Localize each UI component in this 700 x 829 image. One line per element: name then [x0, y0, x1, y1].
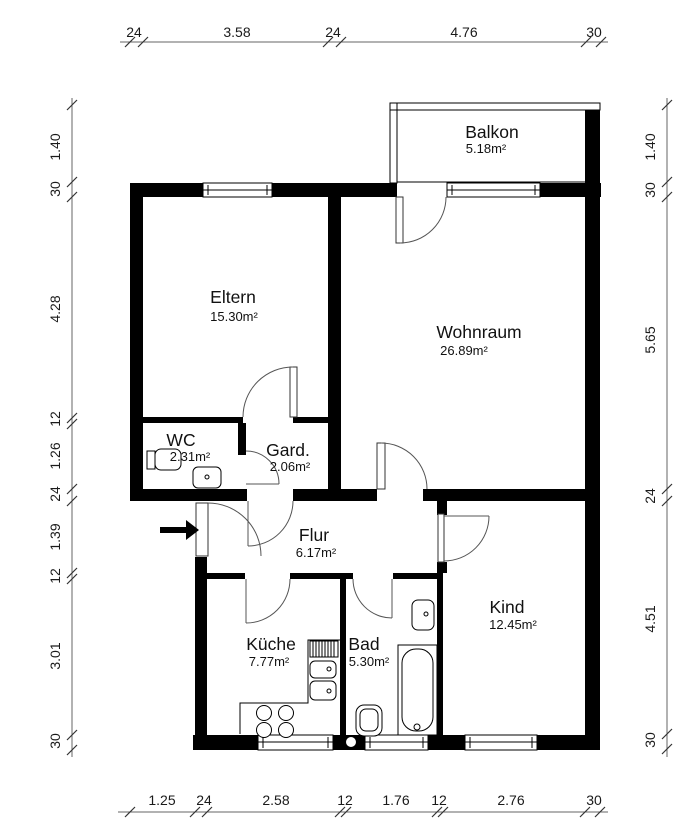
dimension-top: 24 3.58 24 4.76 30: [120, 24, 608, 47]
eltern-window: [203, 183, 272, 197]
wall-eltern-wohnraum: [328, 183, 341, 489]
dim-bottom-7: 30: [586, 792, 602, 808]
dimension-left: 1.40 30 4.28 12 1.26 24 1.39 12 3.01 30: [47, 98, 77, 757]
wall-flur-bottom-b: [290, 573, 353, 579]
doors: [196, 197, 489, 623]
wall-bottom-d: [537, 735, 600, 750]
wall-kind-left-c: [437, 573, 443, 735]
wc-label: WC: [166, 430, 195, 450]
dim-bottom-4: 1.76: [382, 792, 409, 808]
dim-left-3: 12: [47, 411, 63, 427]
dish-rack-hatch: [313, 641, 334, 657]
dim-right-3: 24: [642, 488, 658, 504]
kueche-label: Küche: [246, 634, 296, 654]
dim-bottom-5: 12: [431, 792, 447, 808]
dim-top-0: 24: [126, 24, 142, 40]
dim-top-2: 24: [325, 24, 341, 40]
wall-left-outer: [130, 183, 143, 501]
wc-sink: [193, 467, 221, 488]
wall-pipe-circle: [346, 737, 357, 748]
balkon-area: 5.18m²: [466, 141, 507, 156]
wohnraum-label: Wohnraum: [436, 322, 521, 342]
balcony-railing-top: [390, 103, 600, 110]
dim-bottom-1: 24: [196, 792, 212, 808]
kind-door: [438, 514, 489, 562]
wall-left-lower: [195, 557, 207, 750]
balkon-door: [396, 197, 446, 243]
wall-flur-bottom-c: [393, 573, 443, 579]
dim-left-7: 12: [47, 568, 63, 584]
dim-bottom-3: 12: [337, 792, 353, 808]
floorplan-page: Balkon 5.18m² Eltern 15.30m² Wohnraum 26…: [0, 0, 700, 829]
bad-door: [353, 579, 392, 618]
balkon-label: Balkon: [465, 122, 519, 142]
kind-window: [465, 735, 537, 750]
gard-door: [248, 501, 293, 546]
eltern-label: Eltern: [210, 287, 256, 307]
gard-label: Gard.: [266, 440, 310, 460]
balkon-window: [447, 183, 540, 197]
dim-left-0: 1.40: [47, 133, 63, 160]
wc-area: 2.31m²: [170, 449, 211, 464]
eltern-door: [243, 367, 297, 417]
dim-left-9: 30: [47, 733, 63, 749]
kind-label: Kind: [489, 597, 524, 617]
wall-eltern-bottom-b: [293, 417, 328, 423]
wall-right-outer: [585, 110, 600, 750]
wall-kind-left-b: [437, 562, 447, 573]
wall-flur-top-c: [423, 489, 600, 501]
wall-wc-gard: [238, 423, 246, 455]
dim-right-1: 30: [642, 182, 658, 198]
dim-right-0: 1.40: [642, 133, 658, 160]
wohnraum-door: [377, 443, 427, 489]
dimension-bottom: 1.25 24 2.58 12 1.76 12 2.76 30: [118, 792, 608, 817]
gard-area: 2.06m²: [270, 459, 311, 474]
bad-sink: [412, 600, 434, 630]
wall-eltern-bottom-a: [143, 417, 243, 423]
wohnraum-area: 26.89m²: [440, 343, 488, 358]
dim-right-2: 5.65: [642, 326, 658, 353]
dim-left-4: 1.26: [47, 442, 63, 469]
wall-kueche-bad: [340, 579, 346, 735]
bad-window: [365, 735, 428, 750]
kind-area: 12.45m²: [489, 617, 537, 632]
dim-left-5: 24: [47, 486, 63, 502]
bathtub: [398, 645, 437, 735]
dim-left-1: 30: [47, 181, 63, 197]
wall-kind-left-a: [437, 501, 447, 515]
dim-right-4: 4.51: [642, 605, 658, 632]
dim-bottom-6: 2.76: [497, 792, 524, 808]
dim-left-6: 1.39: [47, 523, 63, 550]
eltern-area: 15.30m²: [210, 309, 258, 324]
kitchen-sink-2: [310, 681, 336, 700]
wall-flur-top-b: [293, 489, 377, 501]
dim-right-5: 30: [642, 732, 658, 748]
stove: [257, 706, 294, 738]
wall-bottom-c: [428, 735, 465, 750]
dim-top-1: 3.58: [223, 24, 250, 40]
dim-top-3: 4.76: [450, 24, 477, 40]
dimension-right: 1.40 30 5.65 24 4.51 30: [642, 98, 672, 757]
kueche-door: [246, 579, 290, 623]
kueche-window: [258, 735, 333, 750]
flur-area: 6.17m²: [296, 545, 337, 560]
floorplan-drawing: Balkon 5.18m² Eltern 15.30m² Wohnraum 26…: [0, 0, 700, 829]
entrance-arrow-icon: [160, 520, 199, 540]
balcony-railing-left: [390, 103, 397, 183]
room-labels: Balkon 5.18m² Eltern 15.30m² Wohnraum 26…: [166, 122, 537, 669]
dim-bottom-2: 2.58: [262, 792, 289, 808]
kueche-area: 7.77m²: [249, 654, 290, 669]
dim-top-4: 30: [586, 24, 602, 40]
dim-left-2: 4.28: [47, 295, 63, 322]
kitchen-sink-1: [310, 661, 336, 678]
wall-bottom-a: [193, 735, 258, 750]
wall-flur-bottom-a: [195, 573, 245, 579]
flur-label: Flur: [299, 525, 329, 545]
wall-flur-top-a: [130, 489, 247, 501]
dim-left-8: 3.01: [47, 642, 63, 669]
bad-area: 5.30m²: [349, 654, 390, 669]
dim-bottom-0: 1.25: [148, 792, 175, 808]
entrance-door: [196, 503, 261, 556]
bad-label: Bad: [348, 634, 379, 654]
bad-toilet: [356, 705, 382, 736]
